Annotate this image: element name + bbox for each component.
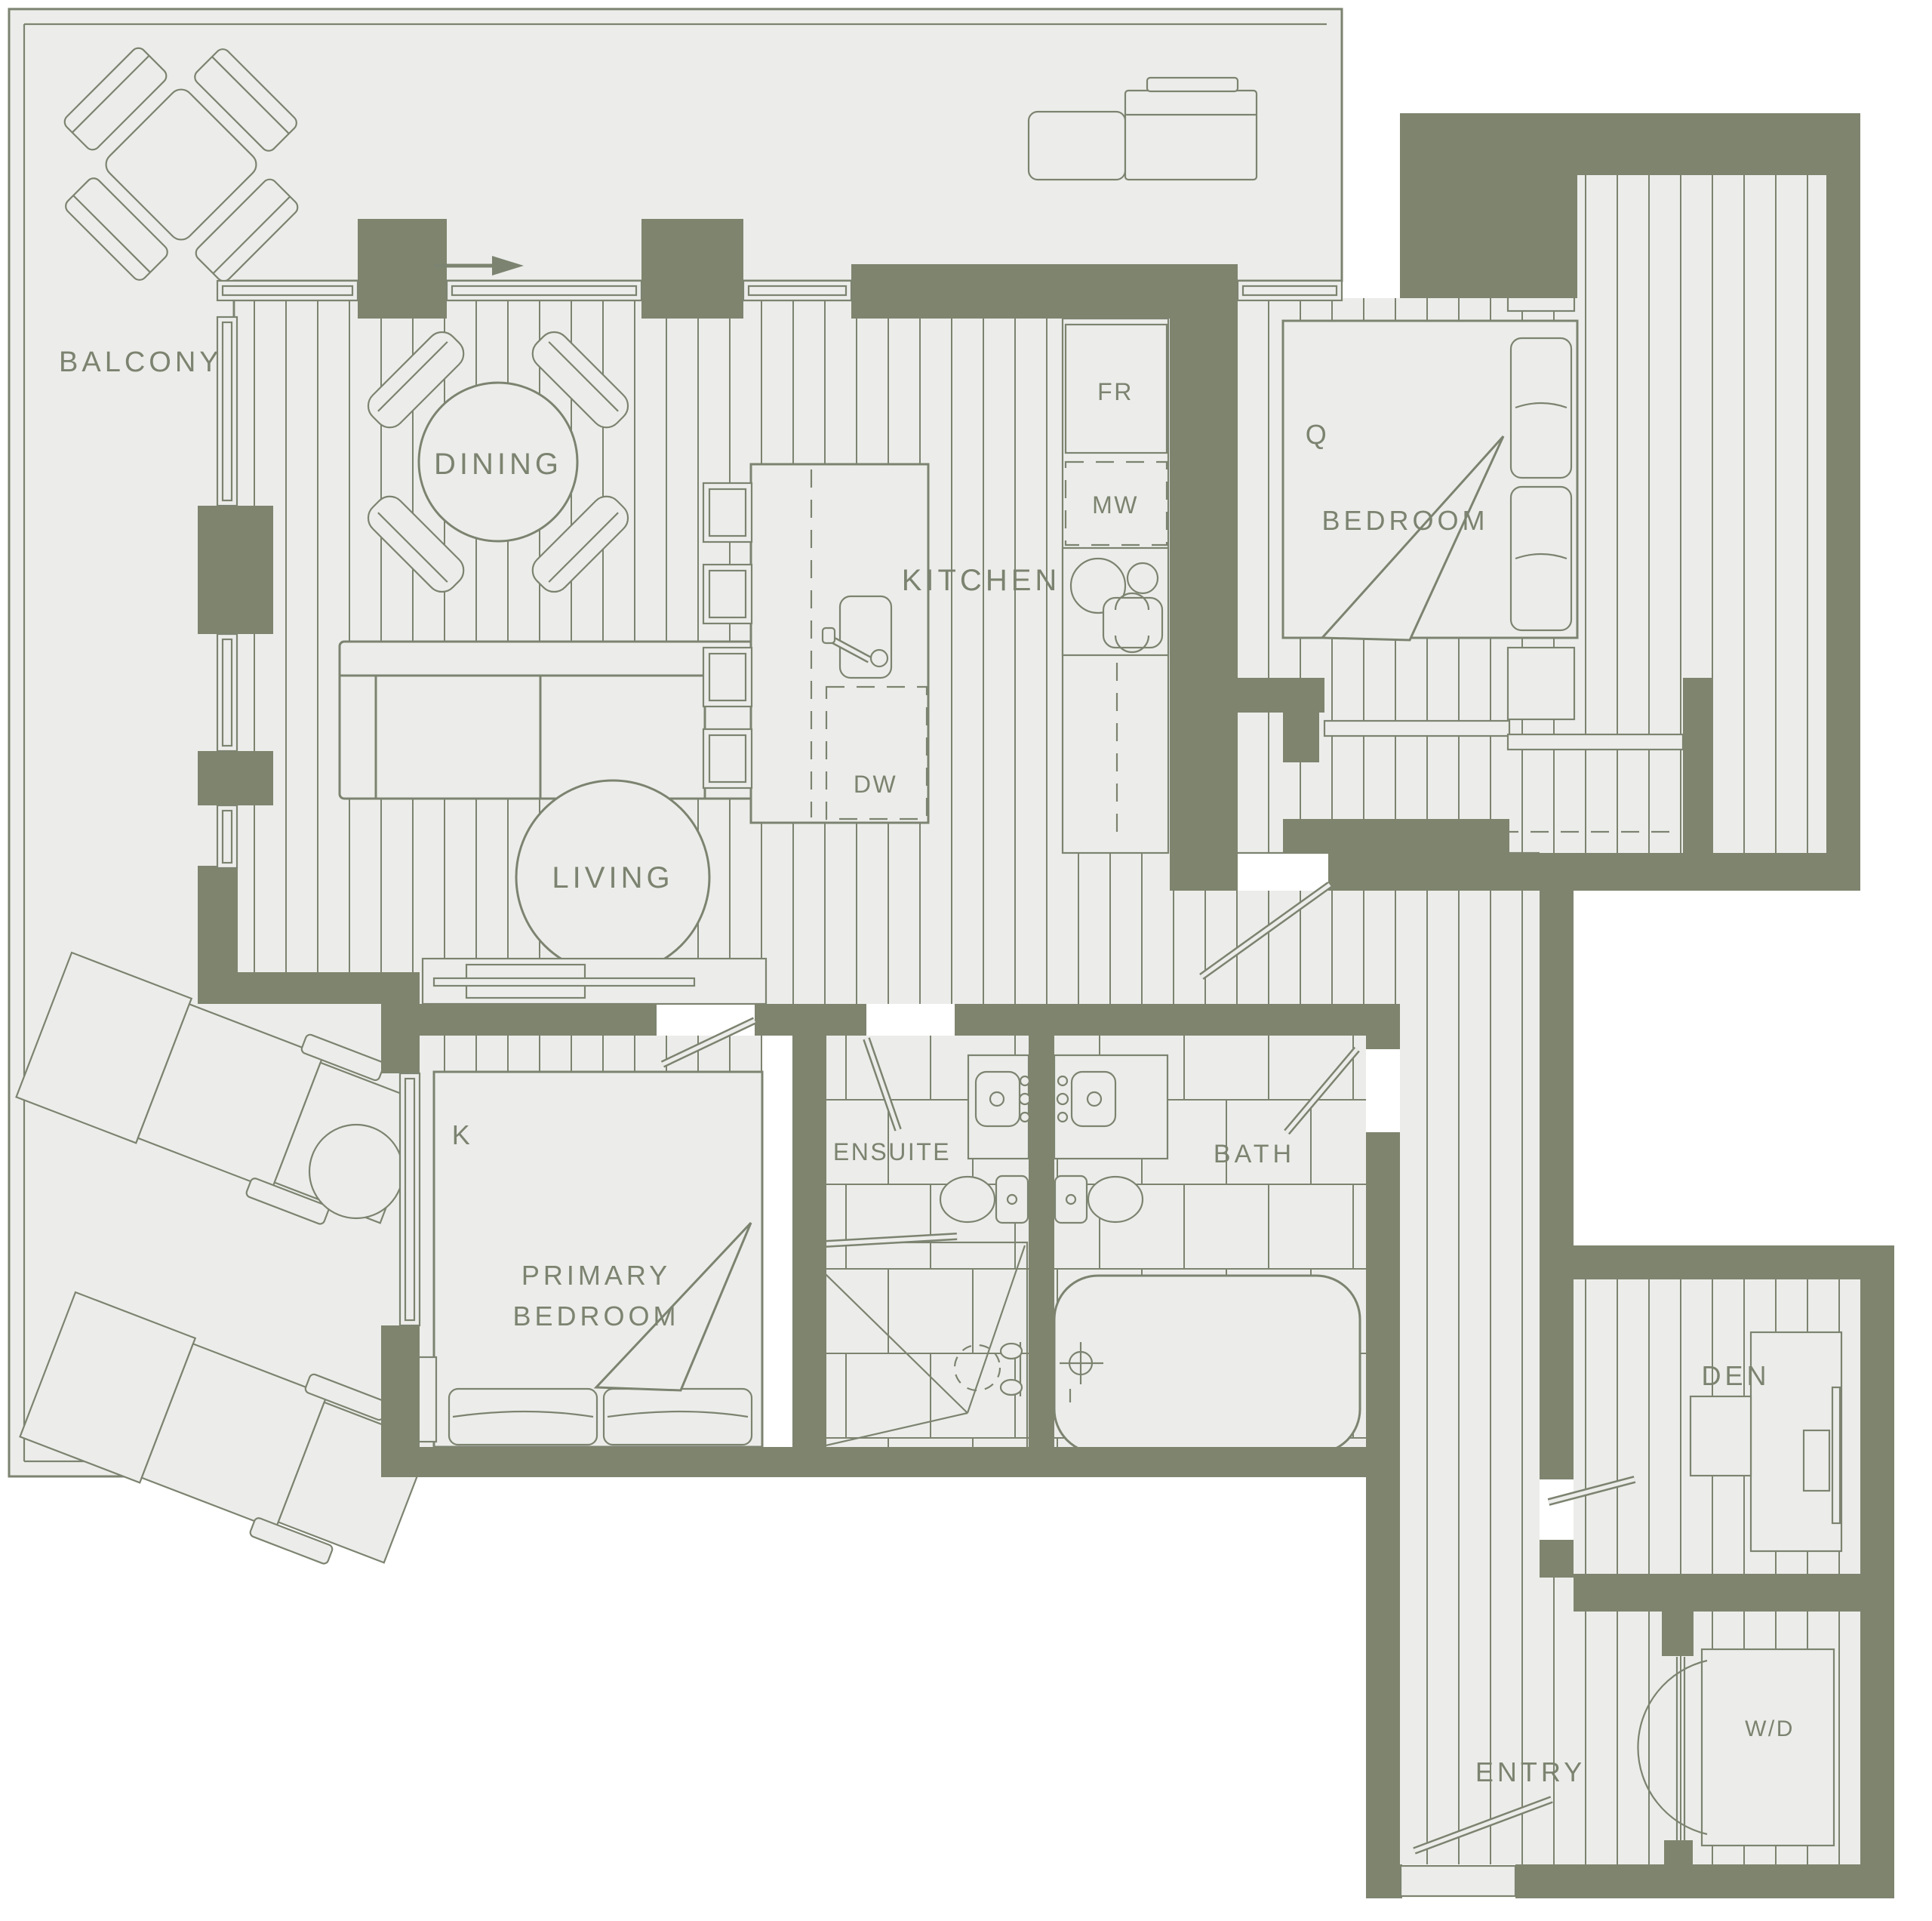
living-label: LIVING — [552, 861, 673, 894]
window — [217, 317, 237, 506]
tv-console — [423, 959, 766, 1004]
window — [400, 1073, 420, 1325]
bed-size-k-label: K — [452, 1119, 472, 1150]
microwave-label: MW — [1092, 491, 1139, 519]
floorplan-page: BALCONY DINING LIVING KITCHEN FR MW DW Q… — [0, 0, 1932, 1921]
window — [217, 281, 358, 300]
ensuite-toilet — [940, 1176, 1028, 1223]
window — [217, 805, 237, 868]
bathtub — [1054, 1276, 1360, 1453]
bath-toilet — [1055, 1176, 1143, 1223]
entry-threshold — [1401, 1866, 1515, 1896]
ensuite-label: ENSUITE — [833, 1138, 951, 1165]
balcony-side-table — [309, 1125, 403, 1218]
dining-label: DINING — [434, 448, 562, 481]
washer-dryer-unit — [1702, 1649, 1834, 1846]
washer-dryer-label: W/D — [1745, 1716, 1795, 1741]
window — [743, 281, 851, 300]
balcony-label: BALCONY — [59, 346, 223, 378]
cooktop — [1063, 548, 1168, 655]
primary-bedroom-label-line1: PRIMARY — [521, 1260, 671, 1291]
window — [1238, 281, 1342, 300]
bath-vanity — [1054, 1055, 1168, 1159]
entry-label: ENTRY — [1475, 1756, 1586, 1787]
dishwasher-label: DW — [854, 771, 897, 798]
fridge-label: FR — [1097, 378, 1134, 405]
bedroom-label: BEDROOM — [1321, 505, 1488, 536]
bedroom-nightstand — [1508, 648, 1574, 719]
desk-chair — [1690, 1396, 1751, 1476]
kitchen-label: KITCHEN — [902, 564, 1061, 597]
kitchen-island — [751, 464, 928, 823]
floorplan-drawing: BALCONY DINING LIVING KITCHEN FR MW DW Q… — [0, 0, 1932, 1921]
primary-bedroom-label-line2: BEDROOM — [512, 1301, 679, 1331]
bath-label: BATH — [1214, 1140, 1295, 1168]
window — [217, 634, 237, 751]
bed-size-q-label: Q — [1306, 419, 1329, 450]
window — [447, 281, 641, 300]
ensuite-vanity — [968, 1055, 1030, 1159]
den-label: DEN — [1701, 1360, 1770, 1391]
